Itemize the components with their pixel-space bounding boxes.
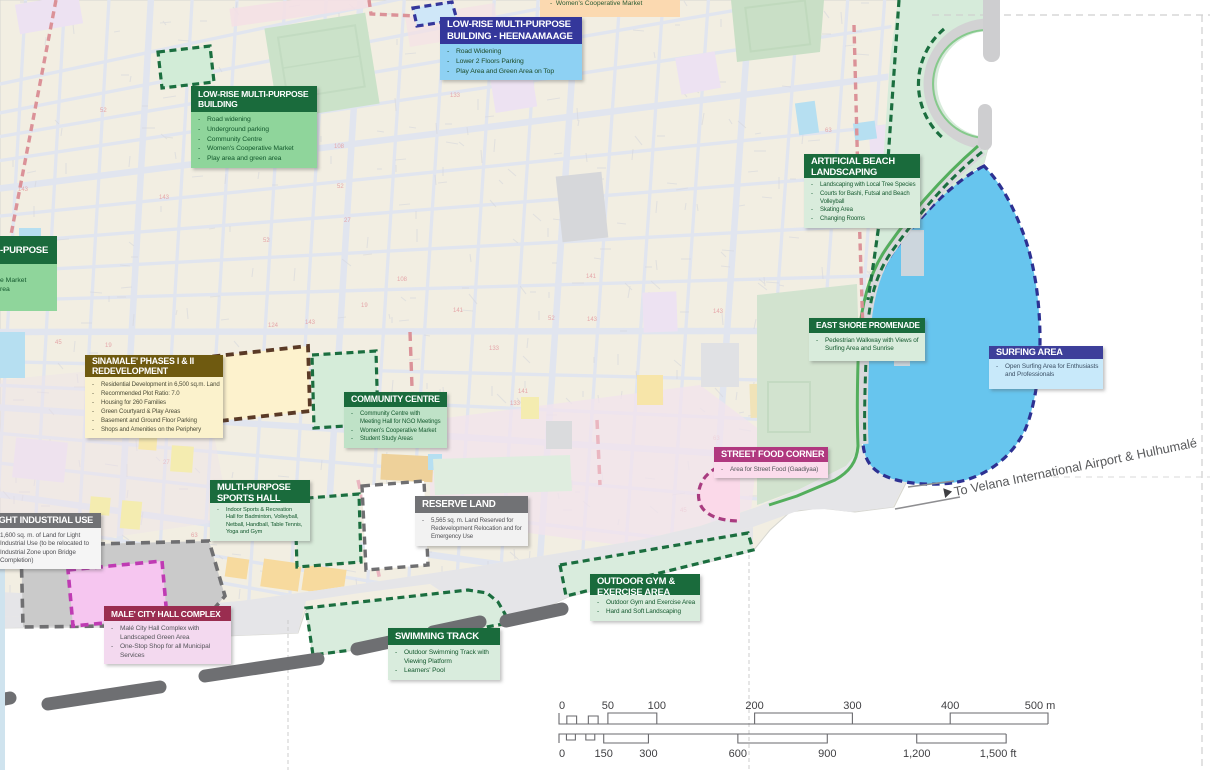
svg-text:141: 141	[518, 389, 529, 395]
svg-text:400: 400	[941, 700, 959, 712]
svg-text:500 m: 500 m	[1025, 700, 1056, 712]
svg-text:143: 143	[305, 320, 316, 326]
svg-text:141: 141	[586, 274, 597, 280]
svg-text:300: 300	[639, 748, 657, 760]
svg-text:27: 27	[344, 218, 351, 224]
svg-text:143: 143	[159, 195, 170, 201]
svg-text:108: 108	[397, 277, 408, 283]
svg-text:50: 50	[602, 700, 614, 712]
svg-text:133: 133	[450, 93, 461, 99]
svg-text:1,500 ft: 1,500 ft	[980, 748, 1017, 760]
svg-text:0: 0	[559, 700, 565, 712]
svg-text:45: 45	[55, 340, 62, 346]
svg-text:600: 600	[729, 748, 747, 760]
svg-text:52: 52	[263, 238, 270, 244]
svg-text:108: 108	[334, 144, 345, 150]
svg-text:141: 141	[453, 308, 464, 314]
svg-text:0: 0	[559, 748, 565, 760]
svg-text:1,200: 1,200	[903, 748, 931, 760]
svg-text:19: 19	[361, 303, 368, 309]
svg-text:63: 63	[191, 533, 198, 539]
svg-text:19: 19	[105, 343, 112, 349]
svg-text:300: 300	[843, 700, 861, 712]
svg-text:200: 200	[745, 700, 763, 712]
svg-text:900: 900	[818, 748, 836, 760]
svg-text:143: 143	[713, 309, 724, 315]
svg-text:124: 124	[268, 323, 279, 329]
svg-text:52: 52	[100, 108, 107, 114]
svg-text:63: 63	[825, 128, 832, 134]
svg-text:133: 133	[510, 401, 521, 407]
svg-text:143: 143	[587, 317, 598, 323]
svg-text:52: 52	[337, 184, 344, 190]
svg-text:100: 100	[648, 700, 666, 712]
svg-text:150: 150	[595, 748, 613, 760]
svg-text:52: 52	[548, 316, 555, 322]
svg-text:133: 133	[489, 346, 500, 352]
